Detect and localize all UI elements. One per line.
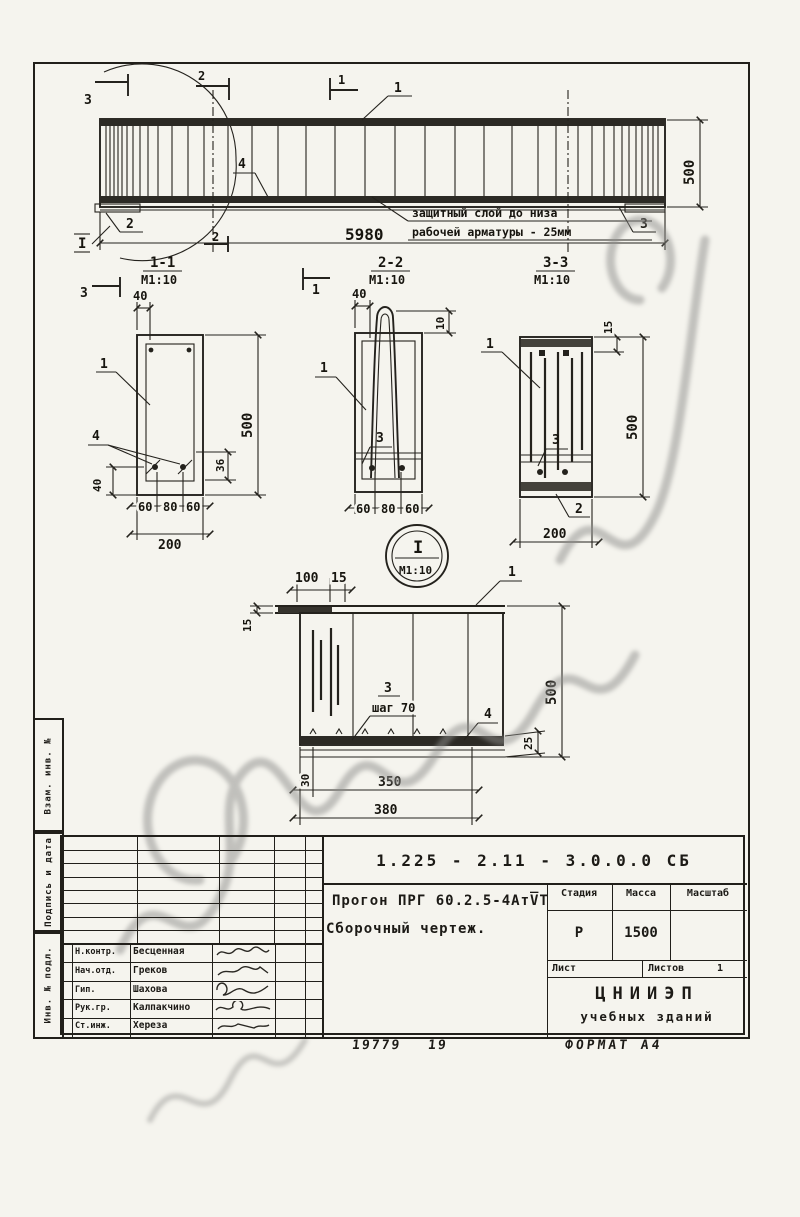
sig-role: Рук.гр.	[75, 1003, 111, 1013]
product-name: Прогон ПРГ 60.2.5-4АтV̅Т	[332, 893, 549, 909]
margin-label-podpis: Подпись и дата	[44, 837, 54, 927]
signature-scribble	[214, 1001, 272, 1016]
sig-role: Нач.отд.	[75, 966, 116, 976]
mass-value: 1500	[641, 925, 675, 941]
stage-value: Р	[579, 925, 587, 941]
signature-scribble	[214, 1019, 272, 1034]
title-block: Н.контр. Бесценная Нач.отд. Греков Гип. …	[60, 835, 745, 1035]
sig-name: Шахова	[133, 984, 167, 995]
sheet-label: Лист	[552, 963, 576, 974]
signature-scribble	[214, 982, 272, 997]
org-name-line2: учебных зданий	[647, 1009, 780, 1024]
drawing-type: Сборочный чертеж.	[326, 921, 486, 937]
margin-box-vzam: Взам. инв. №	[33, 718, 64, 834]
sig-role: Ст.инж.	[75, 1021, 111, 1031]
sig-name: Греков	[133, 965, 167, 976]
scanned-drawing-sheet: 3 2 1 3 2 1 1 4 2	[0, 0, 800, 1217]
sig-name: Бесценная	[133, 946, 184, 957]
sheets-label: Листов	[648, 963, 684, 974]
signature-scribble	[214, 945, 272, 960]
sig-role: Гип.	[75, 985, 95, 995]
org-name-line1: ЦНИИЭП	[647, 984, 750, 1004]
sheet-number: 19	[427, 1038, 448, 1053]
stage-label: Стадия	[579, 888, 615, 899]
signature-scribble	[214, 964, 272, 979]
order-number: 19779	[351, 1038, 402, 1053]
sig-role: Н.контр.	[75, 947, 116, 957]
margin-label-vzam: Взам. инв. №	[44, 737, 54, 814]
doc-code: 1.225 - 2.11 - 3.0.0.0 СБ	[534, 851, 800, 870]
doc-code-bar-line	[322, 883, 747, 885]
sheets-value: 1	[717, 963, 723, 974]
tb-divider	[322, 837, 324, 1037]
mass-label: Масса	[641, 888, 671, 899]
format-label: ФОРМАТ А4	[564, 1038, 663, 1053]
sig-name: Калпакчино	[133, 1002, 190, 1013]
margin-label-inv: Инв. № подл.	[44, 946, 54, 1023]
scale-label: Масштаб	[708, 888, 750, 899]
sig-name: Хереза	[133, 1020, 167, 1031]
